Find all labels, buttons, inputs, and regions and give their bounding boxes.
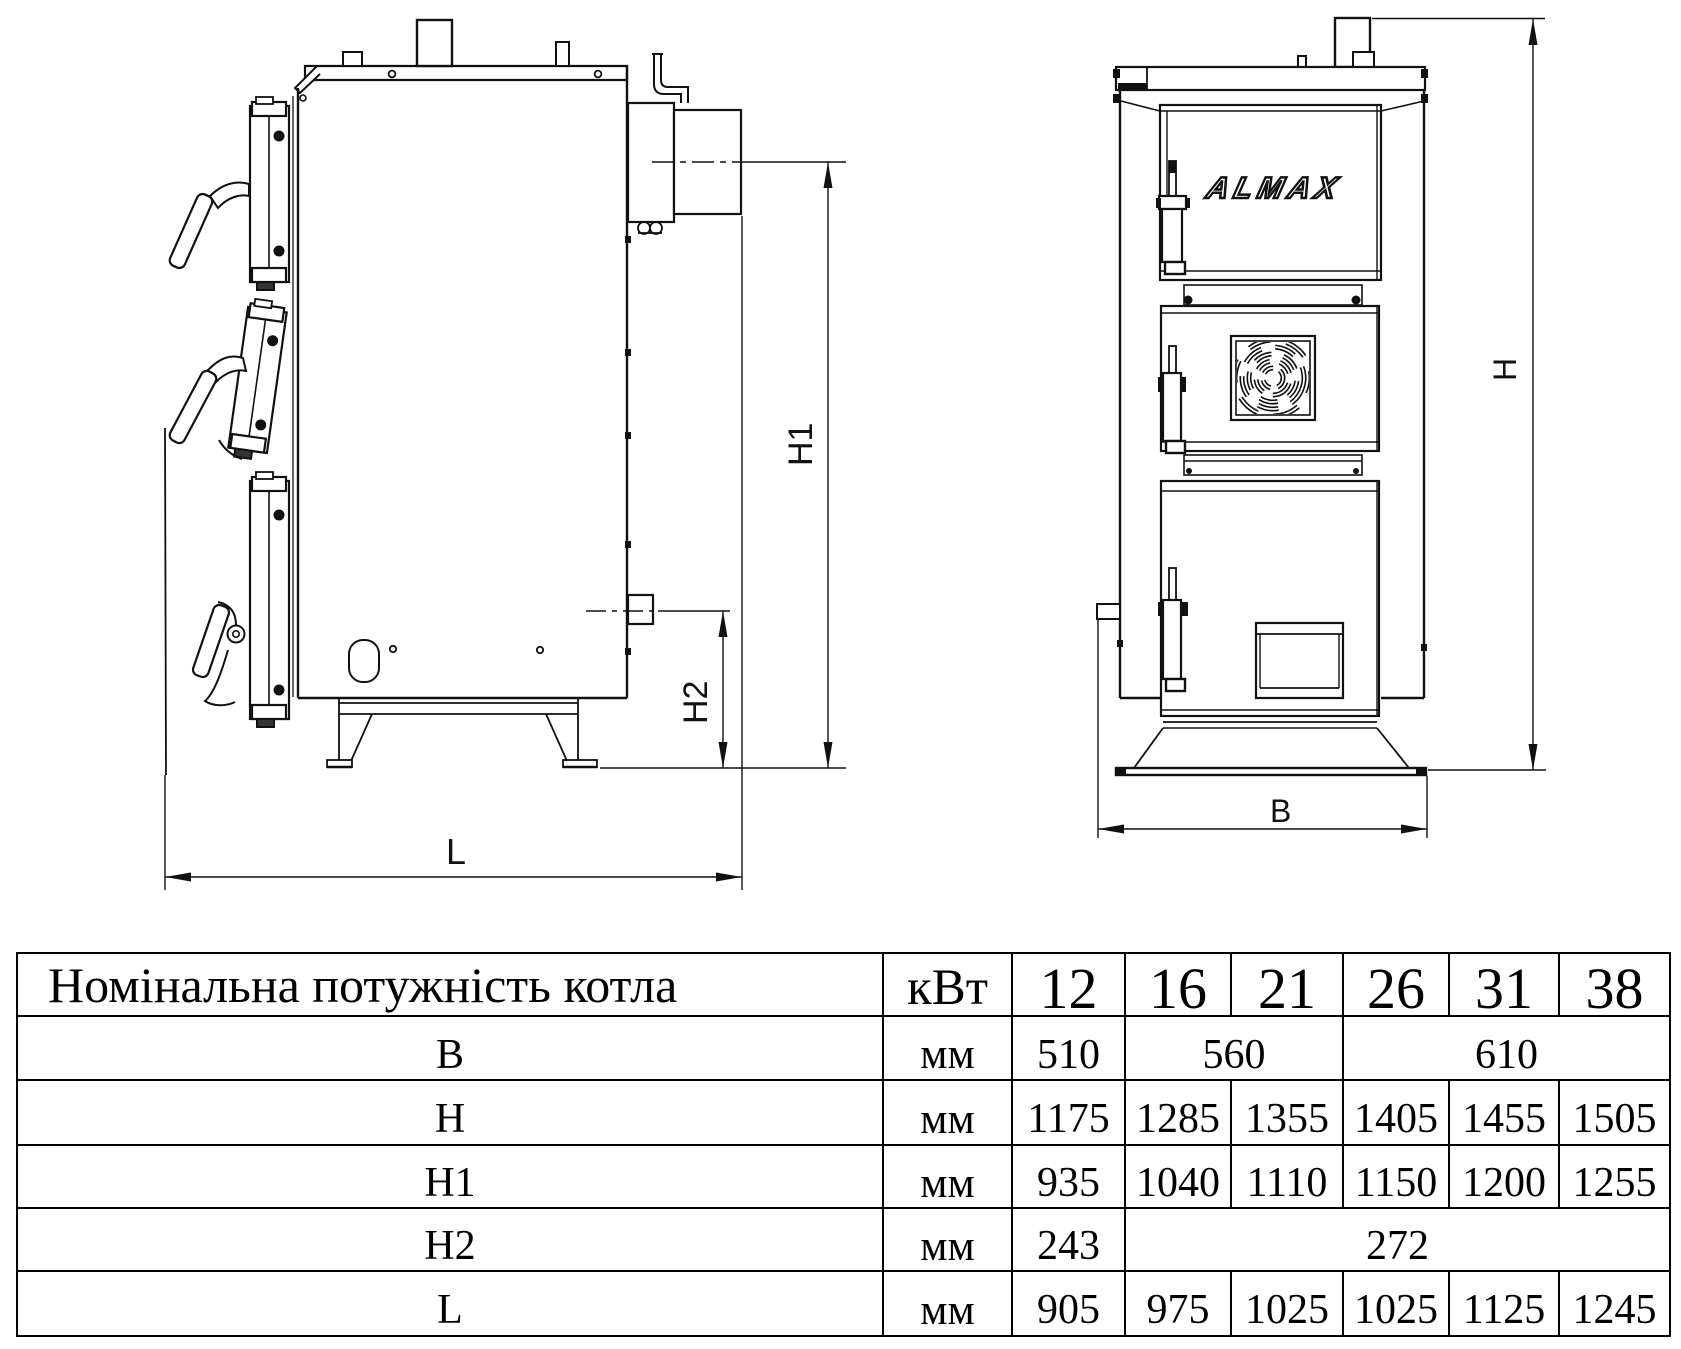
svg-text:H: H	[1487, 358, 1523, 381]
svg-text:L: L	[446, 831, 466, 872]
svg-text:ALMAX: ALMAX	[1202, 171, 1345, 204]
svg-text:B: B	[1270, 793, 1291, 829]
svg-text:H2: H2	[677, 681, 715, 724]
svg-text:H1: H1	[782, 423, 820, 466]
